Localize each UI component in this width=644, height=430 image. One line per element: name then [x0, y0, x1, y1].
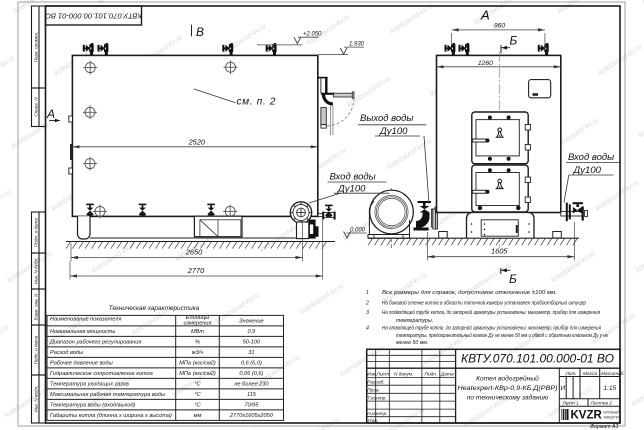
svg-text:по техническому заданию: по техническому заданию: [467, 394, 549, 402]
svg-text:Гидравлическое сопротивление к: Гидравлическое сопротивление котла: [50, 371, 153, 377]
svg-text:+2.050: +2.050: [303, 32, 322, 38]
svg-text:Все размеры для справок, допус: Все размеры для справок, допустимое откл…: [382, 290, 557, 296]
svg-text:температуры.: температуры.: [396, 318, 433, 324]
svg-text:70/95: 70/95: [244, 403, 259, 409]
svg-text:°С: °С: [194, 392, 201, 398]
svg-text:2: 2: [365, 300, 369, 306]
svg-text:Взам. инв. N: Взам. инв. N: [34, 293, 39, 320]
svg-text:Значение: Значение: [239, 319, 264, 325]
svg-text:Подп.: Подп.: [425, 372, 438, 378]
svg-text:Расход воды: Расход воды: [50, 350, 83, 356]
svg-text:960: 960: [494, 23, 506, 30]
svg-text:Утв.: Утв.: [367, 418, 378, 424]
svg-text:см. п. 2: см. п. 2: [237, 96, 277, 107]
svg-text:°С: °С: [194, 403, 201, 409]
svg-text:мм: мм: [194, 413, 202, 419]
svg-text:Температура уходящих газов: Температура уходящих газов: [50, 382, 129, 388]
svg-text:1:15: 1:15: [603, 385, 616, 392]
svg-text:115: 115: [247, 392, 257, 398]
svg-text:Формат А3: Формат А3: [590, 424, 618, 430]
svg-text:В: В: [196, 25, 204, 39]
svg-text:1260: 1260: [478, 60, 493, 67]
svg-text:Подп. и дата: Подп. и дата: [34, 218, 39, 247]
svg-text:1605: 1605: [491, 247, 508, 256]
svg-text:2770х1605х2050: 2770х1605х2050: [229, 413, 274, 419]
svg-text:На боковой стенке котла в обла: На боковой стенке котла в области топочн…: [382, 299, 586, 306]
svg-text:0,6 (6,0): 0,6 (6,0): [241, 361, 262, 367]
svg-text:На отводящей трубе котла ,до з: На отводящей трубе котла ,до запорной ар…: [382, 325, 601, 332]
svg-text:0,06 (0,6): 0,06 (0,6): [239, 371, 263, 377]
svg-text:Диапазон рабочего регулировани: Диапазон рабочего регулирования: [49, 340, 141, 346]
svg-text:Н.контр.: Н.контр.: [367, 411, 387, 417]
svg-text:МПа (кгс/см2): МПа (кгс/см2): [179, 361, 216, 367]
svg-text:Пров.: Пров.: [367, 388, 380, 394]
svg-text:Лист 1: Лист 1: [562, 400, 580, 406]
svg-text:Инв. N подл.: Инв. N подл.: [34, 386, 39, 413]
svg-text:КОТЕЛЬНЫЙ: КОТЕЛЬНЫЙ: [604, 411, 620, 415]
svg-text:0,9: 0,9: [248, 329, 256, 335]
svg-text:КВТУ.070.101.00.000-01 ВО: КВТУ.070.101.00.000-01 ВО: [461, 354, 614, 366]
svg-text:N докум.: N докум.: [394, 372, 413, 378]
svg-text:Листов 2: Листов 2: [590, 400, 613, 406]
svg-text:%: %: [195, 340, 200, 346]
svg-text:2650: 2650: [185, 247, 203, 256]
svg-text:Heatexpert-КВр-0,9-КБ.Д(РВР): Heatexpert-КВр-0,9-КБ.Д(РВР): [458, 385, 558, 392]
svg-text:Ду100: Ду100: [573, 165, 602, 176]
svg-text:Вход воды: Вход воды: [568, 152, 614, 163]
svg-text:Разраб.: Разраб.: [367, 380, 384, 386]
svg-text:4: 4: [366, 326, 369, 332]
svg-text:Инв. N дубл.: Инв. N дубл.: [34, 258, 39, 285]
svg-text:Масса: Масса: [583, 371, 598, 377]
svg-text:Ду100: Ду100: [337, 183, 366, 194]
svg-text:Б: Б: [509, 272, 517, 286]
svg-text:не более 230: не более 230: [234, 382, 269, 388]
svg-text:А: А: [480, 8, 490, 23]
svg-text:Подп. и дата: Подп. и дата: [34, 335, 39, 364]
svg-text:И: И: [560, 385, 565, 392]
svg-text:Масштаб: Масштаб: [601, 371, 624, 377]
svg-text:3: 3: [366, 310, 369, 316]
svg-text:2520: 2520: [188, 138, 206, 147]
svg-text:ЗАВОД РЭП: ЗАВОД РЭП: [604, 416, 620, 420]
svg-text:Номинальная мощность: Номинальная мощность: [50, 329, 115, 335]
svg-text:1.930: 1.930: [349, 42, 365, 48]
svg-text:А: А: [46, 107, 55, 121]
svg-text:КВТУ.070.101.00.000-01 ВО: КВТУ.070.101.00.000-01 ВО: [45, 12, 142, 21]
svg-text:Т.контр.: Т.контр.: [367, 396, 386, 402]
svg-text:31: 31: [248, 350, 254, 356]
svg-text:МПа (кгс/см2): МПа (кгс/см2): [179, 371, 216, 377]
svg-text:Техническая характеристика: Техническая характеристика: [109, 305, 200, 312]
svg-text:Максимальная рабочая температу: Максимальная рабочая температура воды: [50, 392, 165, 398]
svg-text:измерения: измерения: [184, 321, 212, 327]
svg-text:температуры, предохранительный: температуры, предохранительный клапан Ду…: [396, 332, 608, 339]
svg-text:Температура воды (вход/выход): Температура воды (вход/выход): [50, 403, 136, 409]
svg-text:Габариты котла (длинна х ширин: Габариты котла (длинна х ширина х высота…: [50, 413, 172, 419]
svg-text:KVZR: KVZR: [571, 410, 603, 422]
svg-text:МВт: МВт: [191, 329, 204, 335]
svg-text:Ду100: Ду100: [379, 126, 408, 137]
svg-text:менее 50 мм.: менее 50 мм.: [396, 340, 428, 346]
svg-text:Котел водогрейный: Котел водогрейный: [476, 374, 539, 382]
svg-text:Справ. N: Справ. N: [34, 97, 39, 117]
svg-text:На подводящей трубе котла, до: На подводящей трубе котла, до запорной а…: [382, 309, 600, 316]
svg-text:Б: Б: [510, 34, 518, 48]
svg-text:1: 1: [366, 290, 369, 296]
svg-text:Дата: Дата: [440, 372, 454, 378]
svg-text:Наименование показателя: Наименование показателя: [50, 317, 121, 323]
svg-text:Лист: Лист: [376, 372, 389, 378]
svg-text:м3/ч: м3/ч: [192, 350, 203, 356]
svg-text:Выход воды: Выход воды: [360, 113, 413, 124]
svg-text:50-100: 50-100: [243, 340, 261, 346]
svg-text:2770: 2770: [187, 266, 205, 275]
svg-text:Лит.: Лит.: [565, 371, 577, 377]
svg-text:Перв. примен.: Перв. примен.: [34, 32, 39, 63]
svg-text:°С: °С: [194, 382, 201, 388]
svg-text:Вход воды: Вход воды: [330, 172, 376, 183]
svg-text:Рабочее давление воды: Рабочее давление воды: [50, 361, 113, 367]
